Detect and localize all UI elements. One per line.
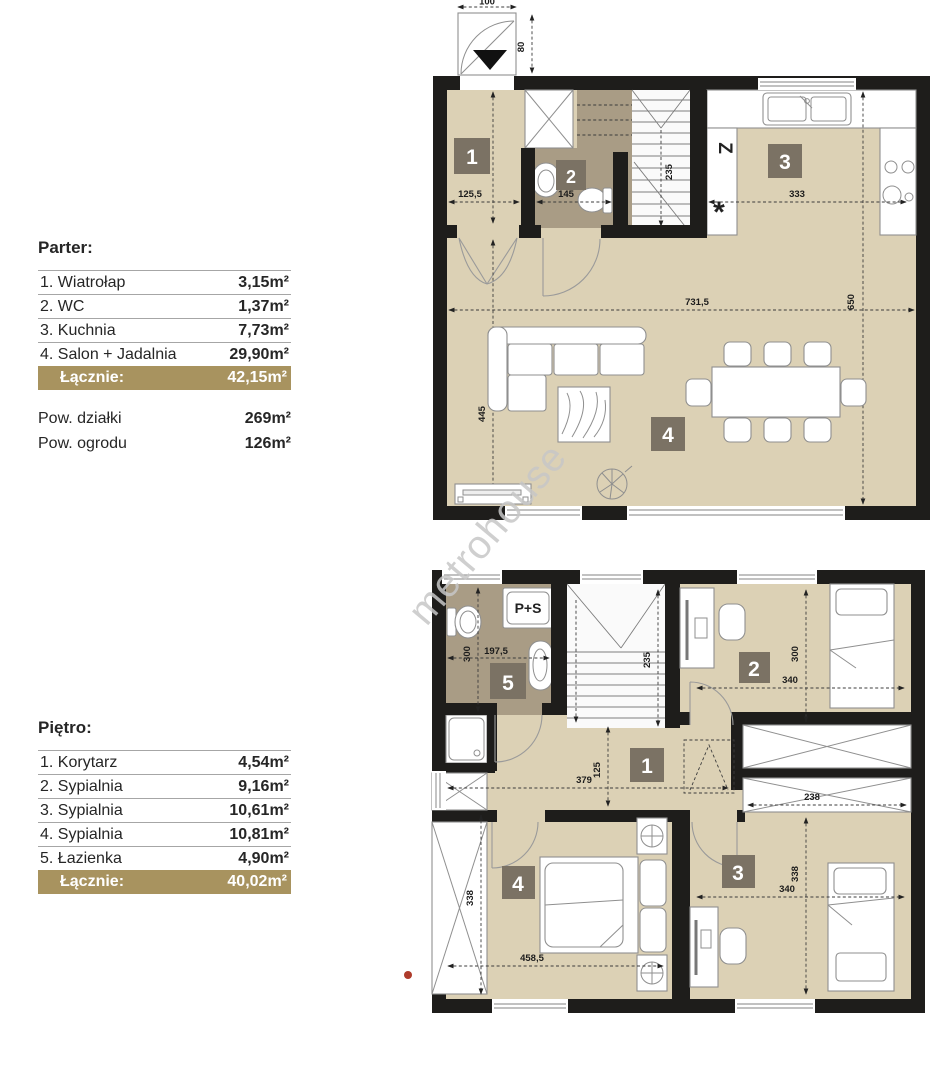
fridge-symbol: Z [714,142,735,154]
garden-area-row: Pow. ogrodu 126m² [38,431,291,456]
dim-label: 235 [642,651,653,668]
room-badge-1: 1 [630,748,664,782]
dim-label: 650 [846,294,857,310]
room-name: 2. Sypialnia [40,778,123,795]
desk-icon [680,588,714,668]
room-badge-2: 2 [739,652,770,683]
red-dot-marker [404,971,412,979]
legend-parter-title: Parter: [38,238,291,258]
room-badge-3: 3 [722,855,755,888]
bed-icon [830,584,894,708]
room-name: 1. Korytarz [40,754,117,771]
legend-row: 5. Łazienka 4,90m² [38,846,291,870]
legend-pietro-title: Piętro: [38,718,291,738]
legend-row: 1. Korytarz 4,54m² [38,750,291,774]
dim-label: 379 [576,775,592,786]
kitchen-sink-icon [763,93,851,125]
legend-pietro-table: 1. Korytarz 4,54m² 2. Sypialnia 9,16m² 3… [38,750,291,894]
dim-label: 100 [479,0,495,8]
bed-icon [828,863,894,991]
dim-label: 238 [804,792,820,803]
total-label: Łącznie: [60,369,124,386]
toilet-icon [578,188,612,213]
toilet-icon [447,606,481,638]
chair-icon [719,604,745,640]
badge-number: 4 [662,424,674,447]
star-symbol: * [713,196,725,229]
room-badge-2: 2 [556,160,586,190]
legend-extra: Pow. działki 269m² Pow. ogrodu 126m² [38,406,291,456]
staircase: 235 [632,90,690,235]
dim-label: 125,5 [458,189,482,200]
room-area: 7,73m² [238,322,289,339]
dim-label: 340 [782,675,798,686]
chair-icon [720,928,746,964]
double-bed-icon [540,857,666,953]
badge-number: 1 [466,146,478,169]
tv-stand-icon [455,484,531,504]
dim-label: 300 [462,646,473,662]
room-area: 29,90m² [229,346,289,363]
room-area: 10,81m² [229,826,289,843]
dim-label: 338 [790,866,801,882]
legend-row: 2. WC 1,37m² [38,294,291,318]
shower-icon [446,715,487,763]
room-area: 3,15m² [238,274,289,291]
dim-label: 125 [592,761,603,778]
legend-row: 4. Salon + Jadalnia 29,90m² [38,342,291,366]
legend-row: 3. Kuchnia 7,73m² [38,318,291,342]
room-name: 1. Wiatrołap [40,274,125,291]
plot-area-row: Pow. działki 269m² [38,406,291,431]
room-area: 9,16m² [238,778,289,795]
dim-label: 235 [664,163,675,180]
legend-row: 4. Sypialnia 10,81m² [38,822,291,846]
plot-area-value: 269m² [245,406,291,431]
dim-label: 445 [477,405,488,422]
room-badge-5: 5 [490,663,526,699]
coffee-table-icon [558,387,610,442]
legend-total-row: Łącznie: 42,15m² [38,366,291,390]
washer-dryer-icon: P+S [503,588,553,628]
plan-pietro: P+S [395,555,941,1025]
legend-parter: Parter: 1. Wiatrołap 3,15m² 2. WC 1,37m²… [38,238,291,456]
room-area: 4,90m² [238,850,289,867]
room-name: 4. Salon + Jadalnia [40,346,177,363]
dim-label: 340 [779,884,795,895]
dim-label: 731,5 [685,297,709,308]
nightstand-lamp-icon [637,955,667,991]
room-area: 10,61m² [229,802,289,819]
room-name: 3. Sypialnia [40,802,123,819]
badge-number: 5 [502,672,514,695]
badge-number: 3 [779,151,791,174]
plot-area-label: Pow. działki [38,406,122,431]
room-name: 3. Kuchnia [40,322,116,339]
dim-label: 333 [789,189,805,200]
entrance-canopy: 100 80 [458,0,532,75]
room-badge-3: 3 [768,144,802,178]
garden-area-value: 126m² [245,431,291,456]
badge-number: 2 [748,658,760,681]
legend-parter-table: 1. Wiatrołap 3,15m² 2. WC 1,37m² 3. Kuch… [38,270,291,390]
dim-label: 338 [465,890,476,906]
room-badge-4: 4 [502,866,535,899]
plan-parter: 100 80 Z [430,0,941,550]
wardrobe-icon [525,90,573,148]
legend-pietro: Piętro: 1. Korytarz 4,54m² 2. Sypialnia … [38,718,291,894]
dim-label: 197,5 [484,646,508,657]
total-label: Łącznie: [60,873,124,890]
floorplan-page: Parter: 1. Wiatrołap 3,15m² 2. WC 1,37m²… [0,0,941,1080]
room-name: 2. WC [40,298,84,315]
badge-number: 4 [512,873,524,896]
room-area: 1,37m² [238,298,289,315]
washer-label: P+S [515,600,542,616]
washbasin-icon [529,641,552,690]
dim-label: 300 [790,646,801,662]
staircase: 235 [567,584,665,728]
room-name: 5. Łazienka [40,850,122,867]
badge-number: 1 [641,755,653,778]
dim-label: 80 [516,42,527,53]
room-badge-1: 1 [454,138,490,174]
garden-area-label: Pow. ogrodu [38,431,127,456]
legend-row: 3. Sypialnia 10,61m² [38,798,291,822]
nightstand-lamp-icon [637,818,667,854]
legend-total-row: Łącznie: 40,02m² [38,870,291,894]
legend-row: 2. Sypialnia 9,16m² [38,774,291,798]
room-name: 4. Sypialnia [40,826,123,843]
entrance-opening [460,76,514,90]
badge-number: 2 [566,167,576,187]
room-area: 4,54m² [238,754,289,771]
desk-icon [690,907,718,987]
dim-label: 458,5 [520,953,544,964]
room-badge-4: 4 [651,417,685,451]
washbasin-icon [533,163,559,197]
total-area: 42,15m² [227,369,287,386]
total-area: 40,02m² [227,873,287,890]
legend-row: 1. Wiatrołap 3,15m² [38,270,291,294]
dim-label: 145 [558,189,575,200]
badge-number: 3 [732,862,744,885]
